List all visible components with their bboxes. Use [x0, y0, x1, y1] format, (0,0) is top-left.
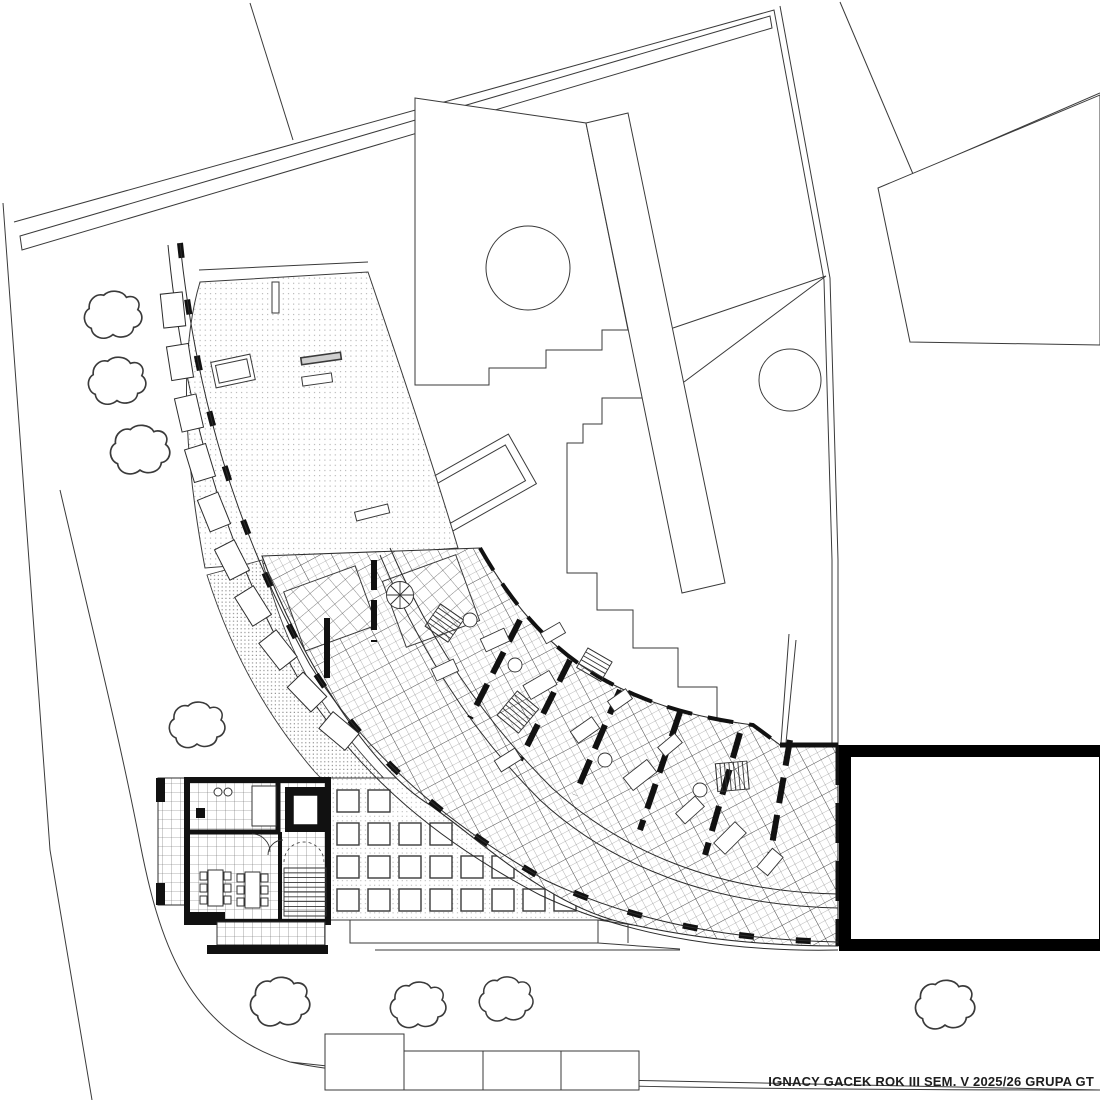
planter	[368, 889, 390, 911]
planter	[368, 823, 390, 845]
spiral-stair	[387, 582, 414, 609]
title-block: IGNACY GACEK ROK III SEM. V 2025/26 GRUP…	[768, 1074, 1094, 1089]
planter	[430, 889, 452, 911]
planter	[399, 823, 421, 845]
tree-cloud	[390, 982, 446, 1028]
tree-cloud	[479, 977, 533, 1021]
furniture	[540, 622, 565, 643]
site-plan-page: IGNACY GACEK ROK III SEM. V 2025/26 GRUP…	[0, 0, 1100, 1100]
tree-cloud	[169, 702, 225, 748]
balcony	[160, 292, 185, 328]
curved-apartment-building	[156, 243, 1100, 954]
planter	[461, 856, 483, 878]
parcel-line-top-2	[840, 2, 913, 174]
planter	[430, 856, 452, 878]
parcel-boundary-left	[3, 203, 92, 1100]
planter	[368, 856, 390, 878]
planter	[337, 856, 359, 878]
wc-fixture	[463, 613, 477, 627]
dining-table	[200, 870, 231, 906]
site-plan-drawing: IGNACY GACEK ROK III SEM. V 2025/26 GRUP…	[0, 0, 1100, 1100]
planter	[399, 856, 421, 878]
tree-cloud	[915, 980, 974, 1029]
wc-fixture	[508, 658, 522, 672]
planter	[368, 790, 390, 812]
building-top-right	[878, 95, 1100, 345]
wc-fixture	[693, 783, 707, 797]
terrace-top-edge	[199, 262, 368, 270]
villa	[156, 778, 328, 954]
planter	[461, 889, 483, 911]
parcel-line-top	[250, 3, 293, 140]
planter	[492, 889, 514, 911]
building-strip	[586, 113, 725, 593]
ramp-wedge	[781, 634, 796, 743]
planter	[337, 889, 359, 911]
planter	[337, 823, 359, 845]
dining-table	[237, 872, 268, 908]
tree-cloud	[88, 357, 145, 404]
planter	[337, 790, 359, 812]
tree-cloud	[84, 291, 141, 338]
road-sidewalk-strip	[20, 16, 772, 250]
sight-lines	[673, 276, 826, 382]
tree-cloud	[250, 977, 309, 1026]
wc-fixture	[598, 753, 612, 767]
planter	[399, 889, 421, 911]
tree-cloud	[110, 425, 169, 474]
building-black-hall	[845, 751, 1100, 945]
buildings-bottom-row	[325, 1034, 639, 1090]
balcony	[166, 343, 193, 380]
tree-circle-2	[759, 349, 821, 411]
